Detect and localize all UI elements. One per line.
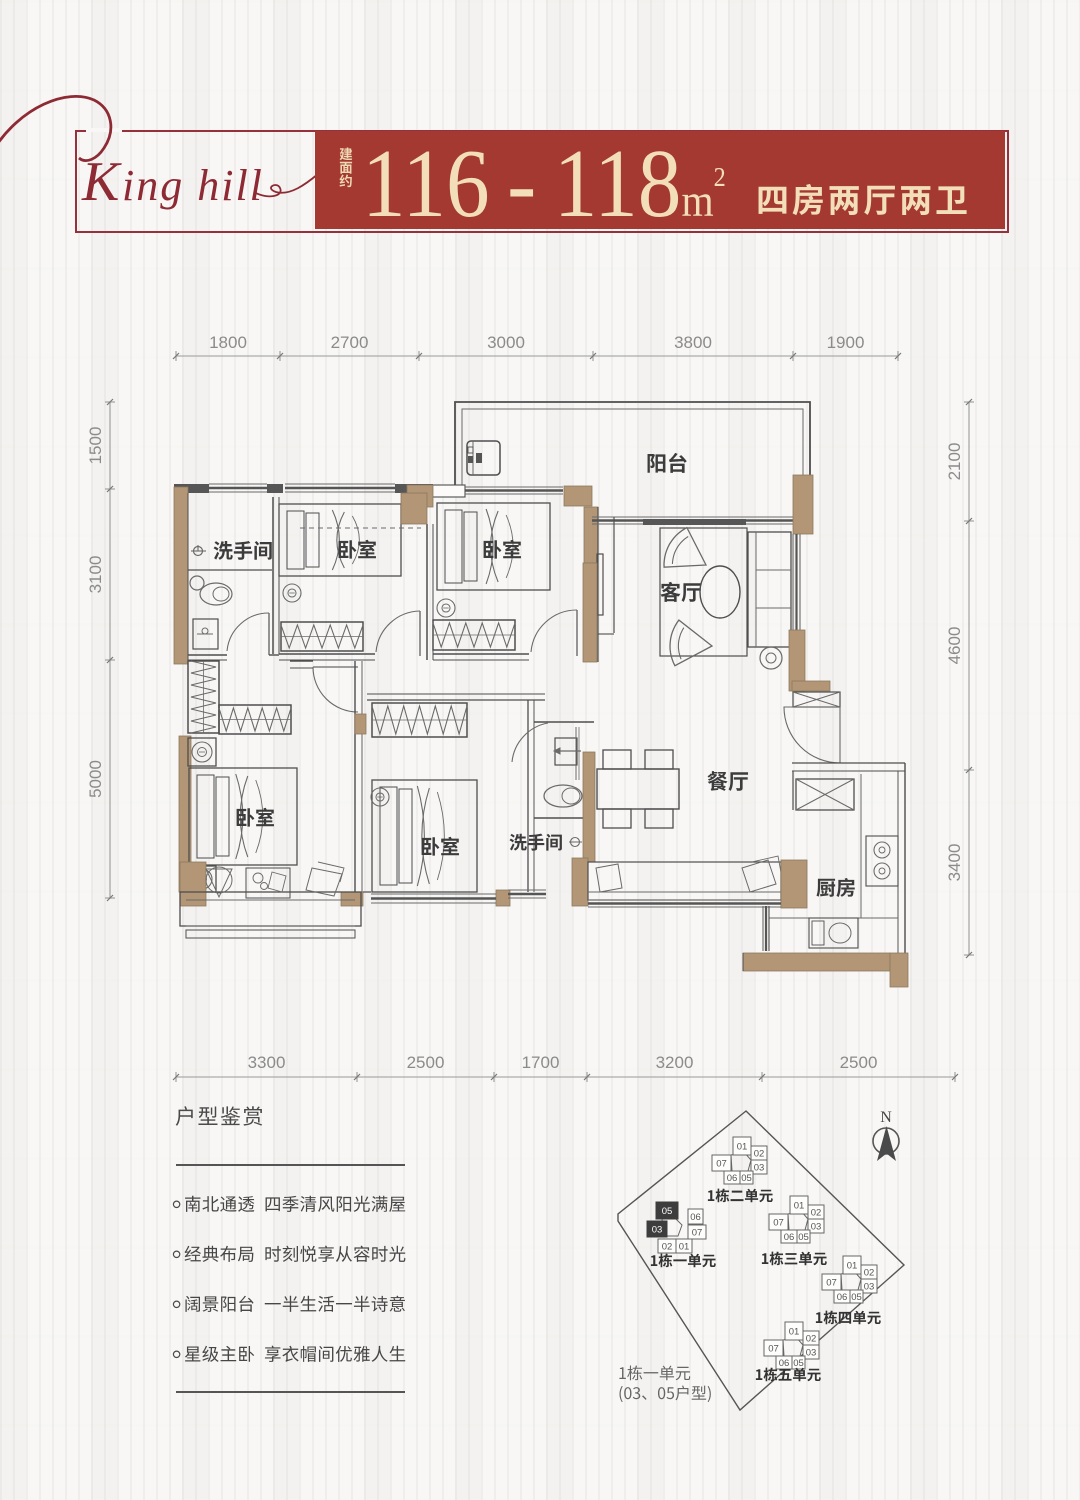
svg-text:05: 05 — [741, 1173, 752, 1184]
svg-text:1700: 1700 — [522, 1053, 560, 1072]
svg-text:05: 05 — [793, 1358, 804, 1369]
svg-text:01: 01 — [679, 1242, 690, 1253]
svg-text:03: 03 — [806, 1348, 817, 1359]
svg-text:02: 02 — [754, 1149, 765, 1160]
svg-text:06: 06 — [784, 1232, 795, 1243]
svg-text:1900: 1900 — [827, 333, 865, 352]
svg-text:07: 07 — [768, 1344, 779, 1355]
svg-text:07: 07 — [773, 1218, 784, 1229]
svg-text:05: 05 — [798, 1232, 809, 1243]
svg-text:05: 05 — [662, 1206, 673, 1217]
svg-text:02: 02 — [806, 1334, 817, 1345]
svg-text:3100: 3100 — [86, 556, 105, 594]
svg-text:N: N — [880, 1109, 892, 1126]
svg-text:06: 06 — [727, 1173, 738, 1184]
svg-text:3200: 3200 — [656, 1053, 694, 1072]
svg-text:01: 01 — [789, 1327, 800, 1338]
svg-text:05: 05 — [851, 1292, 862, 1303]
svg-text:3800: 3800 — [674, 333, 712, 352]
svg-text:06: 06 — [779, 1358, 790, 1369]
svg-text:2500: 2500 — [407, 1053, 445, 1072]
svg-text:2500: 2500 — [840, 1053, 878, 1072]
svg-text:1500: 1500 — [86, 427, 105, 465]
svg-text:03: 03 — [864, 1282, 875, 1293]
svg-text:07: 07 — [716, 1159, 727, 1170]
svg-text:3400: 3400 — [945, 844, 964, 882]
svg-text:3000: 3000 — [487, 333, 525, 352]
svg-text:02: 02 — [811, 1208, 822, 1219]
svg-text:01: 01 — [847, 1261, 858, 1272]
svg-text:3300: 3300 — [248, 1053, 286, 1072]
svg-text:1800: 1800 — [209, 333, 247, 352]
svg-text:03: 03 — [811, 1222, 822, 1233]
svg-text:02: 02 — [662, 1242, 673, 1253]
svg-text:03: 03 — [652, 1225, 663, 1236]
svg-text:2700: 2700 — [331, 333, 369, 352]
svg-text:06: 06 — [837, 1292, 848, 1303]
svg-text:4600: 4600 — [945, 627, 964, 665]
svg-text:07: 07 — [692, 1228, 703, 1239]
svg-text:5000: 5000 — [86, 760, 105, 798]
svg-text:07: 07 — [826, 1278, 837, 1289]
svg-text:01: 01 — [794, 1201, 805, 1212]
svg-text:2100: 2100 — [945, 443, 964, 481]
svg-text:03: 03 — [754, 1163, 765, 1174]
svg-text:06: 06 — [690, 1212, 701, 1223]
svg-text:01: 01 — [737, 1142, 748, 1153]
svg-text:02: 02 — [864, 1268, 875, 1279]
